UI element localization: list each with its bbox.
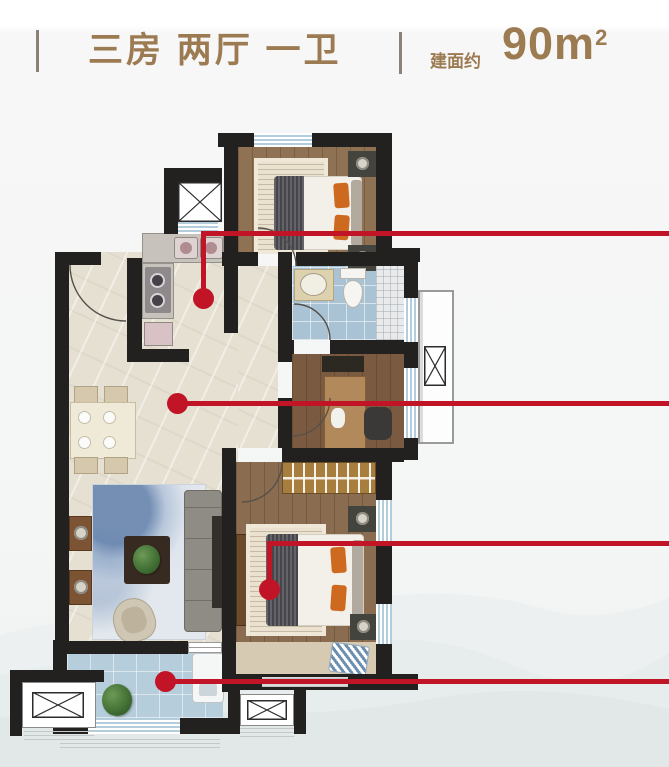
window-sill — [240, 728, 294, 737]
window — [88, 718, 180, 734]
wall — [296, 252, 404, 266]
bathroom-sink — [300, 273, 327, 296]
cabinet-lamp-icon — [74, 526, 88, 540]
balcony-slider-door — [188, 642, 222, 653]
dining-plate — [103, 411, 116, 424]
bedroom1-pillow — [333, 215, 350, 241]
wall — [222, 448, 236, 692]
wall — [10, 670, 22, 736]
dining-chair — [104, 457, 128, 474]
callout-balcony-line — [165, 679, 669, 684]
study-chair — [364, 407, 392, 440]
shaft-x-icon — [247, 700, 287, 720]
dining-chair — [104, 386, 128, 403]
stove-burner-icon — [150, 273, 165, 288]
wall — [164, 168, 178, 234]
divider-bar-right — [399, 32, 402, 74]
bedroom1-bed-blanket — [274, 176, 304, 250]
bedroom1-headboard — [351, 180, 362, 246]
bedroom2-headboard — [352, 540, 363, 622]
wall — [278, 340, 294, 354]
nightstand-lamp-icon — [356, 512, 369, 525]
callout-kitchen-dot — [193, 288, 214, 309]
bathroom-mosaic-floor — [376, 266, 404, 340]
callout-living-dining-dot — [167, 393, 188, 414]
washing-machine-door — [199, 684, 217, 696]
bench-with-blanket — [328, 642, 370, 677]
shaft-x-icon — [424, 346, 446, 386]
floorplan — [0, 0, 669, 767]
wall — [55, 641, 188, 654]
bedroom1-pillow — [333, 183, 350, 209]
callout-kitchen-line — [201, 231, 669, 236]
wall — [228, 688, 240, 734]
coffee-table-plant-icon — [133, 545, 160, 574]
area-value: 90m2 — [502, 18, 608, 70]
dining-table — [70, 402, 136, 459]
kitchen-fridge — [144, 322, 173, 346]
nightstand-lamp-icon — [356, 157, 369, 170]
wall — [127, 258, 142, 362]
dining-chair — [74, 386, 98, 403]
window — [376, 604, 392, 644]
wall — [294, 688, 306, 734]
wall — [127, 349, 189, 362]
tv-console — [212, 516, 222, 608]
wardrobe — [282, 462, 376, 494]
study-shelf — [322, 356, 364, 372]
stove-burner-icon — [150, 293, 165, 308]
window — [254, 133, 312, 147]
window — [404, 298, 418, 342]
shaft-x-icon — [32, 692, 84, 718]
callout-balcony-dot — [155, 671, 176, 692]
dining-plate — [78, 436, 91, 449]
callout-living-dining-line — [177, 401, 669, 406]
hallway-floor — [238, 266, 278, 448]
wall — [376, 133, 392, 262]
area-superscript: 2 — [595, 25, 608, 50]
page-title: 三房 两厅 一卫 — [88, 22, 341, 73]
kitchen-sink-basin — [180, 242, 192, 254]
shaft-x-icon — [178, 182, 222, 222]
dining-chair — [74, 457, 98, 474]
header: 三房 两厅 一卫 建面约 90m2 — [0, 0, 669, 100]
cabinet-lamp-icon — [74, 580, 88, 594]
floorplan-poster: 三房 两厅 一卫 建面约 90m2 — [0, 0, 669, 767]
wall — [55, 252, 69, 654]
dining-plate — [78, 411, 91, 424]
wall — [330, 340, 404, 354]
toilet-tank — [340, 268, 366, 279]
bedroom2-pillow — [330, 585, 347, 612]
window-sill — [24, 730, 94, 740]
callout-bedroom2-dot — [259, 579, 280, 600]
study-laptop — [331, 408, 345, 428]
divider-bar-left — [36, 30, 39, 72]
callout-bedroom2-line — [267, 541, 669, 546]
kitchen-sink-basin — [205, 242, 217, 254]
dining-plate — [103, 436, 116, 449]
wall — [10, 670, 104, 682]
area-number: 90m — [502, 18, 595, 69]
balcony-plant-icon — [102, 684, 132, 716]
area-label: 建面约 — [430, 47, 481, 72]
nightstand-lamp-icon — [357, 620, 370, 633]
window — [376, 500, 392, 544]
bedroom2-pillow — [330, 547, 347, 574]
